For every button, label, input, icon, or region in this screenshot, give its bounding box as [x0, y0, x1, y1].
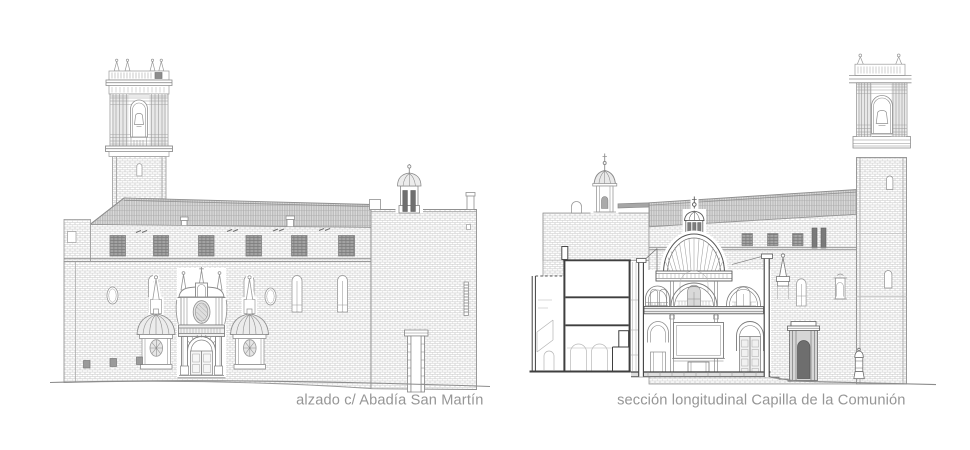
svg-text:alzado c/ Abadía San Martín: alzado c/ Abadía San Martín	[296, 393, 483, 409]
svg-text:sección longitudinal Capilla d: sección longitudinal Capilla de la Comun…	[617, 393, 905, 409]
